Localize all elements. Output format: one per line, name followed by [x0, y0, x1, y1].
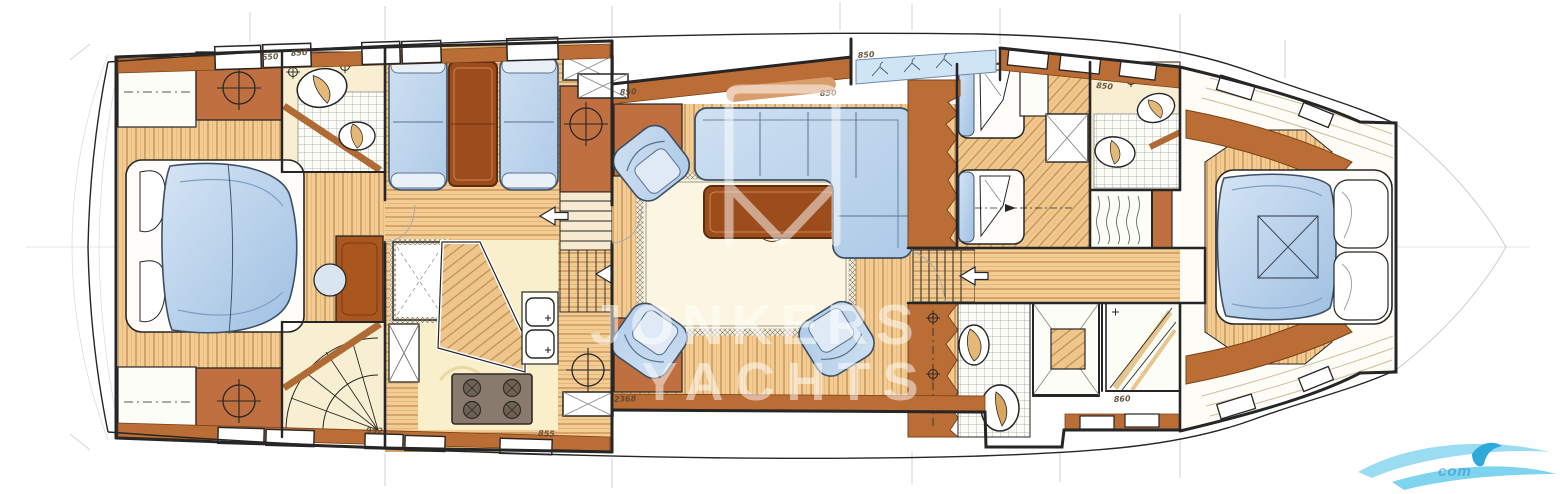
hanging-locker	[1090, 190, 1172, 248]
watermark-line1: JONKERS	[590, 293, 922, 357]
dimension-mark: 850	[620, 87, 638, 97]
guest-cabin-midship	[908, 62, 1090, 248]
master-cabin	[118, 52, 385, 437]
duvet	[162, 164, 297, 333]
sink	[959, 325, 989, 365]
dimension-mark: 860	[1114, 394, 1132, 404]
master-bathroom	[282, 52, 385, 172]
corridor	[975, 248, 1205, 302]
pillow	[1334, 180, 1388, 248]
aft-stairs	[282, 322, 385, 437]
sink	[526, 330, 554, 358]
dimension-mark: 855	[538, 429, 555, 439]
window	[215, 45, 262, 69]
cabinet	[1152, 190, 1172, 248]
dimension-mark: 650	[262, 52, 280, 62]
sink	[526, 298, 554, 326]
companionway-steps	[560, 192, 612, 250]
v-berth-bed	[1216, 170, 1392, 324]
berth	[958, 170, 1024, 244]
window	[1080, 416, 1114, 429]
dimension-mark: 850	[1096, 81, 1114, 91]
dinette-sofa	[500, 56, 558, 190]
yacht-floor-plan: 6508508508508508502368952855860 JONKERS …	[0, 0, 1560, 494]
dinette-sofa	[389, 56, 447, 190]
wave-swoosh-icon	[1392, 466, 1556, 490]
dimension-mark: 952	[366, 426, 383, 436]
wave-logo: com	[1358, 443, 1556, 490]
sink	[339, 122, 375, 150]
stool	[314, 264, 346, 296]
stove	[452, 374, 532, 424]
shower-tray	[1051, 329, 1085, 369]
pillow	[1334, 252, 1388, 320]
berth	[958, 64, 1024, 138]
watermark-line2: YACHTS	[641, 352, 930, 412]
dimension-mark: 850	[858, 50, 876, 60]
dimension-mark: 2368	[614, 394, 637, 404]
shower-room	[1033, 303, 1099, 395]
dimension-mark: 850	[291, 48, 309, 58]
dinette	[389, 56, 558, 190]
storage-locker	[1106, 303, 1180, 391]
window	[1125, 414, 1159, 427]
hatch-box	[563, 392, 613, 416]
master-bed	[126, 160, 304, 334]
galley-dinette	[385, 44, 624, 452]
logo-text: com	[1438, 463, 1472, 480]
